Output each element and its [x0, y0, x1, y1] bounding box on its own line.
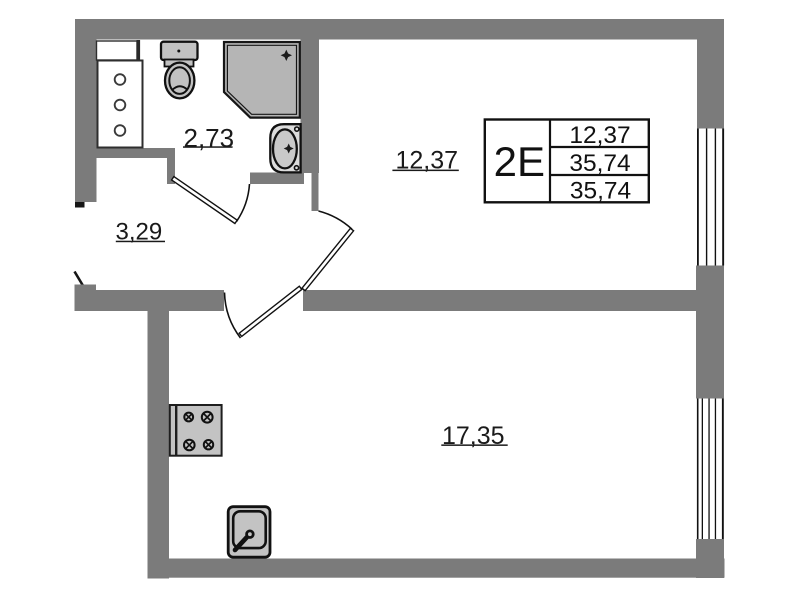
svg-text:12,37: 12,37 — [569, 122, 630, 149]
svg-text:2,73: 2,73 — [184, 123, 235, 153]
svg-text:2E: 2E — [494, 138, 545, 185]
svg-text:35,74: 35,74 — [570, 178, 631, 205]
svg-text:35,74: 35,74 — [569, 150, 630, 177]
